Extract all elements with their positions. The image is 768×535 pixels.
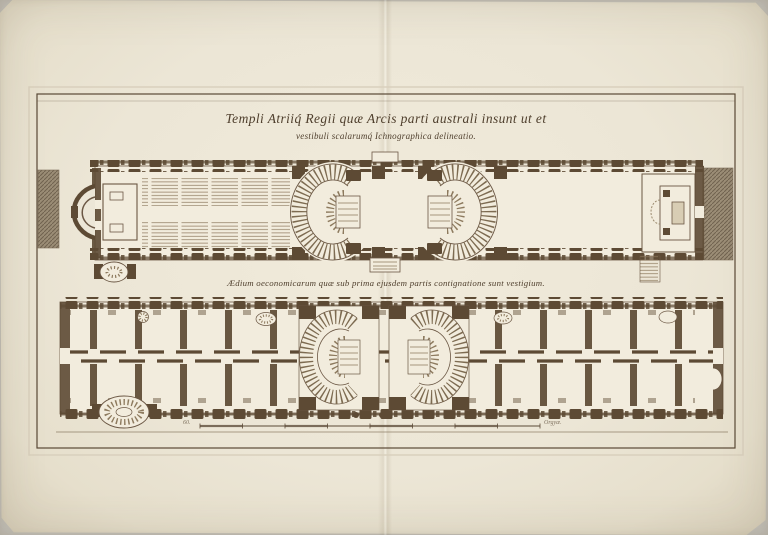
pews-upper-bank	[142, 178, 290, 206]
scale-label-left: 60.	[183, 420, 191, 426]
lower-plan-caption: Ædium oeconomicarum quæ sub prima ejusde…	[37, 278, 735, 288]
center-porch	[370, 258, 400, 272]
room-bank-north	[70, 310, 695, 349]
hatched-ground-left	[38, 170, 59, 248]
grand-staircase-west	[289, 162, 377, 262]
hatched-ground-right	[704, 168, 733, 260]
royal-chapel	[642, 174, 695, 252]
upper-floor-plan	[38, 152, 733, 282]
engraved-plate	[0, 0, 768, 535]
plan-title-line2: vestibuli scalarumq́ Ichnographica delin…	[37, 131, 735, 141]
photo-backdrop: Templi Atriiq́ Regii quæ Arcis parti aus…	[0, 0, 768, 535]
plan-title-line1: Templi Atriiq́ Regii quæ Arcis parti aus…	[37, 111, 735, 127]
lower-staircase-west	[299, 306, 379, 410]
lower-staircase-east	[389, 306, 469, 410]
lower-floor-plan	[56, 297, 728, 432]
room-bank-south	[70, 364, 695, 406]
scale-label-right: Orgyæ.	[544, 420, 562, 426]
pews-lower-bank	[142, 222, 290, 249]
scale-bar	[200, 424, 540, 429]
grand-staircase-east	[411, 162, 499, 262]
